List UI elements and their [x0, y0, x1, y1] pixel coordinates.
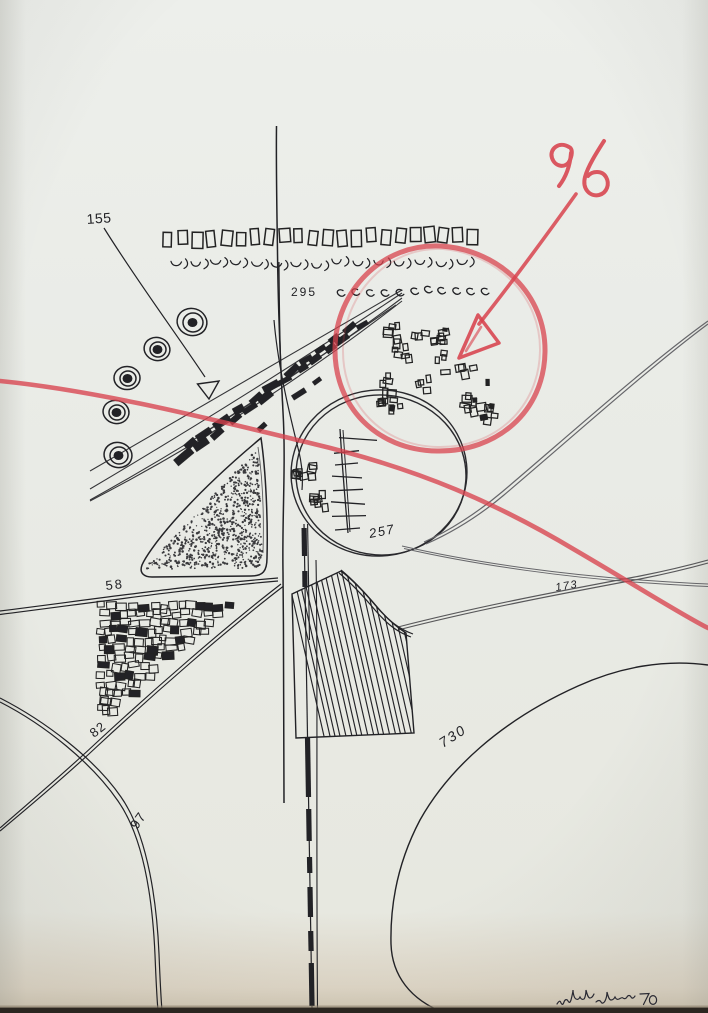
svg-text:58: 58	[105, 576, 125, 593]
svg-text:295: 295	[291, 285, 317, 299]
svg-text:155: 155	[86, 209, 112, 227]
